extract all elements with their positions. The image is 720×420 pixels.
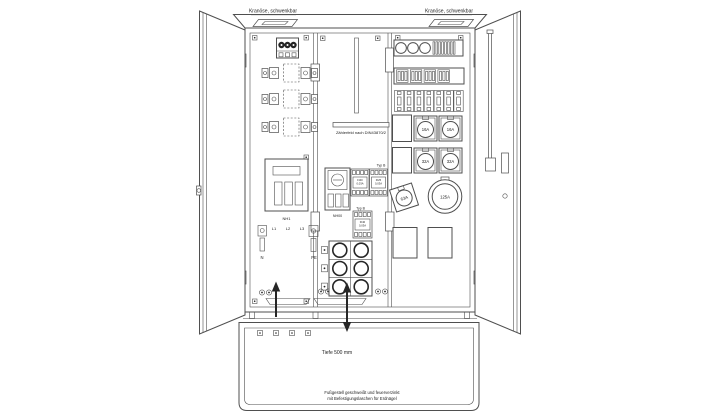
nh1-label: NH1: [282, 216, 291, 221]
rcd-upper-type-label: Typ B: [377, 164, 386, 168]
cee-socket-32a-1: 32A: [414, 148, 437, 173]
socket-32a-1-label: 32A: [422, 159, 430, 164]
cee-socket-16a-2: 16A: [439, 116, 462, 141]
busbar-fuse-strip: [394, 40, 463, 56]
phase-l3-label: L3: [300, 226, 305, 231]
rcd-upper-left-text1: FI40: [357, 178, 363, 182]
socket-32a-2-label: 32A: [447, 159, 455, 164]
rcd-lower-text1: FI40: [360, 220, 366, 224]
crane-label-right: Kranöse, schwenkbar: [425, 9, 473, 15]
left-door-latch: [197, 186, 202, 195]
rcd-upper-left-text2: 0,03A: [356, 182, 363, 186]
n-label: N: [260, 255, 263, 260]
phase-l1-label: L1: [272, 226, 277, 231]
right-door: [475, 11, 521, 334]
crane-eyelet-left: [253, 20, 298, 27]
cee-socket-32a-2: 32A: [439, 148, 462, 173]
meter-rail: [333, 123, 389, 128]
meter-panel-label: Zählerfeld nach DIN43870/2: [336, 130, 387, 135]
phase-l2-label: L2: [286, 226, 291, 231]
distribution-cabinet-drawing: Tiefe 500 mm Fußgestell geschweißt und f…: [0, 0, 720, 420]
depth-label: Tiefe 500 mm: [322, 350, 352, 356]
base-footer-line1: Fußgestell geschweißt und feuerverzinkt: [324, 390, 400, 395]
socket-16a-2-label: 16A: [447, 127, 455, 132]
base-footer-line2: mit Befestigungslaschen für Erdnägel: [327, 396, 396, 401]
cee-socket-16a-1: 16A: [414, 116, 437, 141]
rcd-block-lower: Typ B FI40 0,03A: [353, 207, 372, 239]
blank-plate-1: [393, 115, 412, 142]
crane-label-left: Kranöse, schwenkbar: [249, 9, 297, 15]
rcd-lower-text2: 0,03A: [359, 224, 366, 228]
cabinet-top: Kranöse, schwenkbar Kranöse, schwenkbar: [234, 9, 487, 31]
crane-eyelet-right: [429, 20, 474, 27]
blank-plate-3: [393, 228, 417, 259]
rcd-upper-right-text2: 0,03A: [375, 182, 382, 186]
blank-plate-2: [393, 148, 412, 174]
socket-16a-1-label: 16A: [422, 127, 430, 132]
base-frame: Tiefe 500 mm Fußgestell geschweißt und f…: [239, 323, 479, 411]
rcd-lower-type-label: Typ B: [356, 207, 365, 211]
rcd-upper-right-text1: FI25: [376, 178, 382, 182]
pe-label: PE: [311, 255, 317, 260]
modular-device-row: [394, 68, 464, 84]
nh00-label: NH00: [333, 214, 342, 218]
socket-125a-label: 125A: [440, 194, 450, 199]
nh00-fuse-switch: NH00: [325, 168, 350, 218]
incoming-terminal-block: [277, 38, 299, 58]
left-door: [197, 11, 246, 334]
blank-plate-4: [428, 228, 452, 259]
